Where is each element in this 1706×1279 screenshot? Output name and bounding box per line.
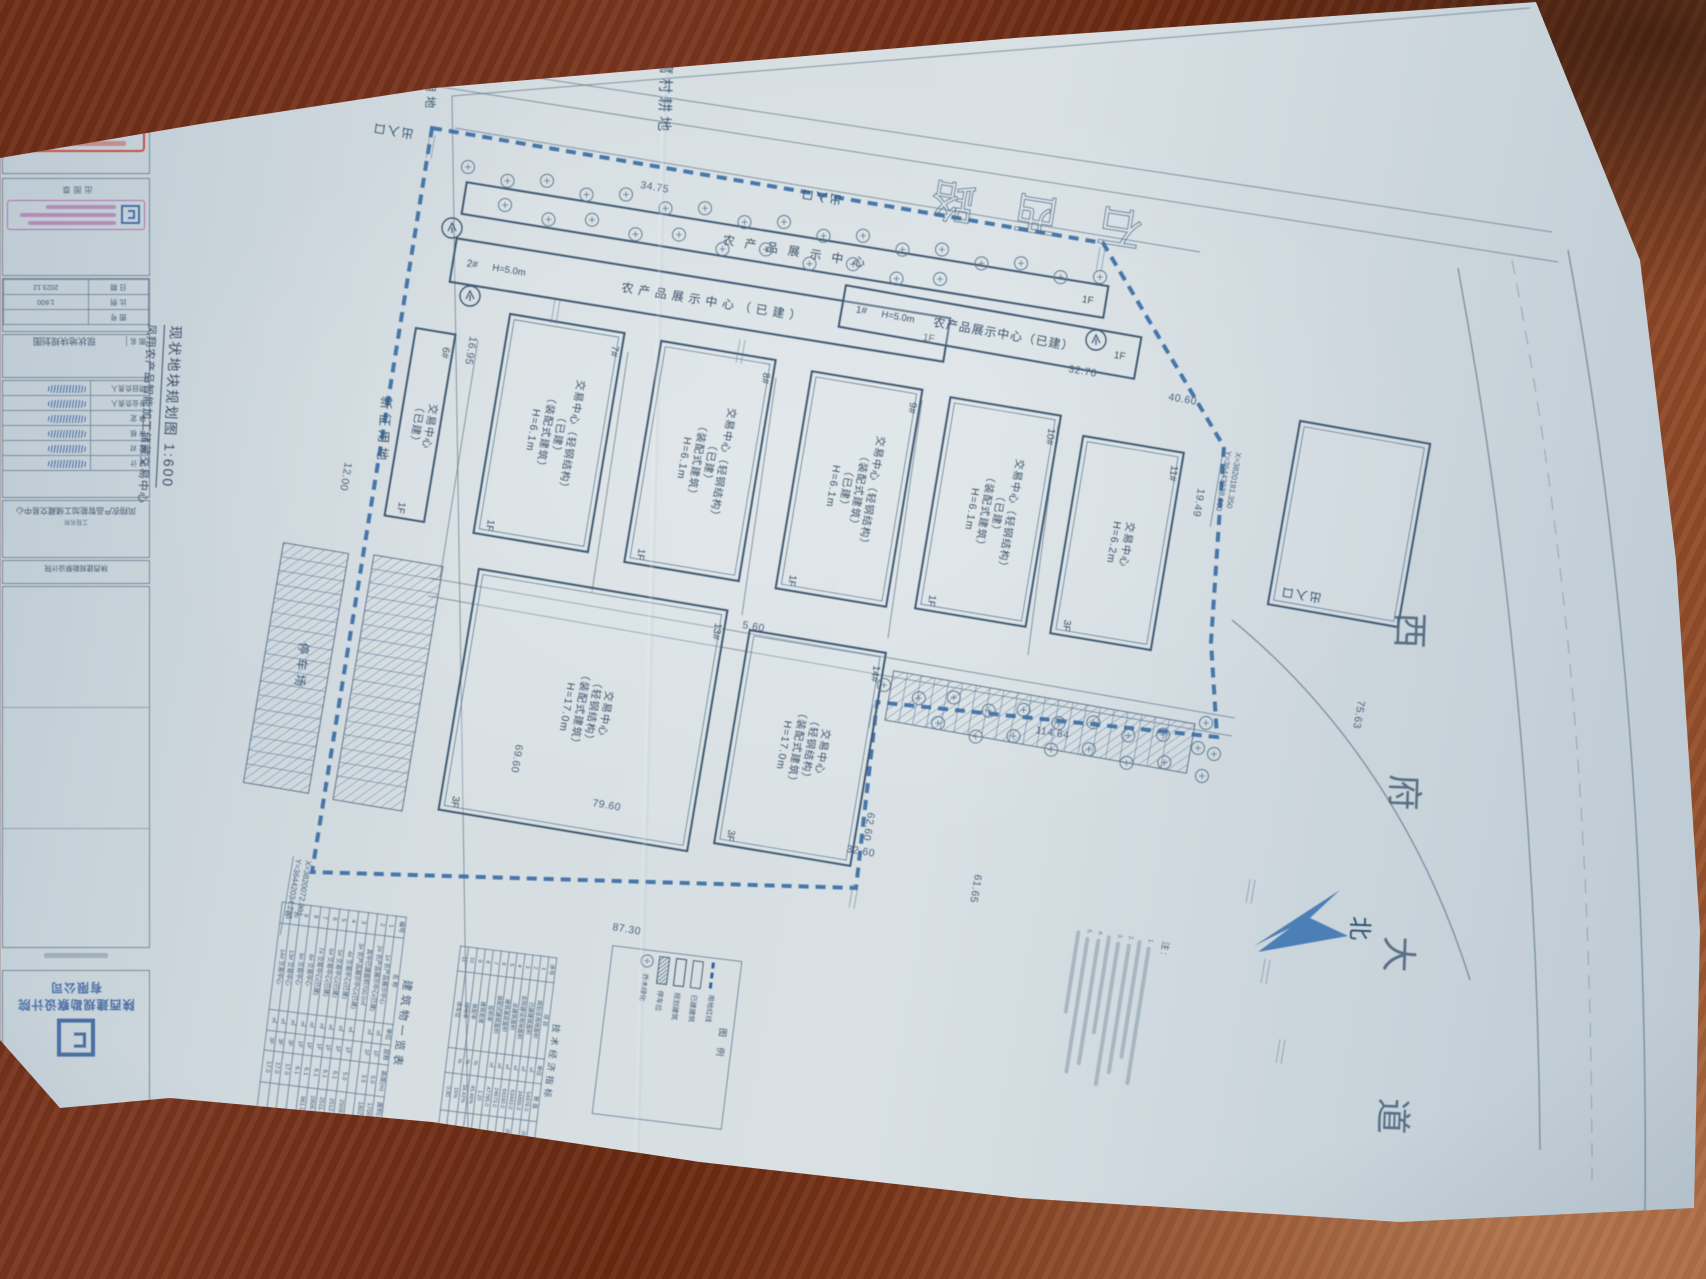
- notes-label: 注:: [1159, 941, 1171, 958]
- road-line: [452, 8, 1530, 96]
- road-line: [0, 48, 340, 100]
- info-cell: 2023.12: [4, 280, 89, 295]
- drawing-name-value: 现状地块规划图: [3, 335, 126, 348]
- info-cell: 日 期: [88, 280, 148, 295]
- tree-icon: [1196, 770, 1209, 783]
- building-floors: 3F: [724, 829, 737, 842]
- building: 交易中心H=6.2m11#3F: [1050, 436, 1184, 650]
- coordinate-tick: [1276, 1039, 1285, 1063]
- building-floors: 1F: [1081, 294, 1094, 307]
- dimension-text: 75.63: [1350, 700, 1367, 730]
- building: 交易中心（轻钢结构）（已建）（装配式建筑）H=6.1m8#1F: [624, 341, 775, 581]
- tree-icon: [699, 202, 712, 215]
- registration-number: 611590-001: [45, 127, 108, 138]
- road-line: [345, 72, 1558, 262]
- registration-stamp: 611590-001 ★ 2025: [7, 94, 145, 152]
- tree-icon: [857, 229, 870, 242]
- tiny-caption: [2, 950, 148, 966]
- signature-scribble: [47, 400, 87, 408]
- signature-row: 审 定: [3, 411, 149, 426]
- issue-stamp: [7, 200, 145, 230]
- building-floors: 1F: [785, 574, 798, 587]
- planned-symbol-icon: [673, 958, 687, 987]
- north-label: 北: [1345, 916, 1373, 941]
- tree-icon: [620, 188, 633, 201]
- tree-icon: [580, 188, 593, 201]
- legend-item-label: 已建建筑: [686, 994, 699, 1023]
- buildings-table: 编号名 称单位层数高度(m)面积(㎡)11# 农产品展示中心㎡1F5.01709…: [256, 902, 407, 1131]
- building-floors: 1F: [634, 548, 647, 561]
- project-name: 凤翔农产品智能加工储藏交易中心: [3, 501, 149, 518]
- building-number: 6#: [438, 346, 451, 359]
- parking-strip: [333, 555, 443, 811]
- company-logo-icon: [121, 206, 140, 225]
- area-label: 豆腐村耕地: [655, 40, 676, 136]
- info-cell: 比 例: [88, 295, 148, 310]
- built-symbol-icon: [690, 960, 704, 989]
- issue-stamp-box: 出图章: [2, 178, 150, 276]
- coordinate-tick: [551, 299, 560, 323]
- area-label: 新征用地: [374, 396, 394, 465]
- building-floors: 1F: [394, 501, 407, 514]
- drawing-name-box: 图 名 现状地块规划图: [2, 334, 150, 378]
- stamp2-label: 出图章: [3, 183, 149, 196]
- title-block-strip: 611590-001 ★ 2025 注册章: [0, 36, 152, 1120]
- road-line: [0, 2, 660, 62]
- building: 交易中心（轻钢结构）（已建）（装配式建筑）H=6.1m7#1F: [473, 314, 624, 552]
- info-grid: 图 号比 例1:600日 期2023.12: [3, 279, 149, 325]
- legend-item-label: 停车位: [653, 990, 665, 1012]
- blueprint-sheet: 农产品展示中心1F农产品展示中心（已建）2#H=5.0m1F农产品展示中心（已建…: [0, 0, 1706, 1279]
- tree-icon: [936, 243, 949, 256]
- boundary-symbol-icon: [709, 962, 715, 988]
- entrance-label: 出入口: [371, 120, 415, 140]
- parking-layer: [243, 543, 1195, 811]
- legend-item-label: 乔木绿化: [637, 973, 650, 1002]
- building-number: 2#: [466, 258, 479, 271]
- building-number: 8#: [759, 372, 772, 385]
- right-road-name: 西 府 大 道: [1370, 612, 1431, 1193]
- company-line2: 有限公司: [50, 981, 102, 995]
- signature-row: 设 计: [3, 456, 149, 471]
- company-name-small: 陕西建规勘察设计院: [3, 561, 149, 575]
- signature-row: 专业负责人: [3, 396, 149, 411]
- tree-icon: [1200, 717, 1213, 730]
- signature-row: 审 核: [3, 426, 149, 441]
- tree-icon: [1208, 748, 1221, 761]
- legend-block: 图 例 用地红线已建建筑规划建筑停车位✛乔木绿化: [592, 945, 743, 1130]
- company-logo-icon-large: [57, 1019, 95, 1057]
- company-row: 陕西建规勘察设计院: [2, 560, 150, 584]
- tree-icon: [659, 202, 672, 215]
- legend-item-label: 规划建筑: [669, 992, 682, 1021]
- dimension-text: 87.30: [612, 921, 642, 938]
- tree-icon: [1015, 257, 1028, 270]
- indicators-table-block: 技术经济指标 序号项 目单位数 值备 注1规划总用地面积㎡54976.0(82.…: [408, 942, 573, 1167]
- area-label: 二期用地: [423, 48, 439, 112]
- road-line: [0, 72, 345, 128]
- project-name-box: 工程名称 凤翔农产品智能加工储藏交易中心: [2, 500, 150, 558]
- dimension-text: 34.75: [640, 179, 670, 196]
- building: 交易中心（轻钢结构）（装配式建筑）H=17.0m13#3F: [439, 569, 728, 851]
- tree-icon: [462, 161, 475, 174]
- registration-stamp-box: 611590-001 ★ 2025 注册章: [2, 72, 150, 174]
- building-floors: 1F: [1113, 350, 1126, 363]
- coordinate-tick: [1096, 247, 1105, 271]
- dimension-text: 16.95: [462, 336, 479, 366]
- company-logo-box: 陕西建规勘察设计院 有限公司: [2, 970, 150, 1114]
- signature-scribble: [47, 460, 87, 468]
- circled-tree-icon: [460, 286, 480, 306]
- legend-item-label: 用地红线: [703, 994, 716, 1023]
- valid-year: 2025: [21, 108, 39, 117]
- signature-scribble: [45, 107, 99, 117]
- tree-symbol-icon: ✛: [640, 954, 654, 968]
- table-cell: [256, 1082, 270, 1116]
- building: 交易中心（轻钢结构）（已建）（装配式建筑）H=6.1m10#1F: [915, 397, 1061, 627]
- tree-icon: [501, 174, 514, 187]
- info-cell: 1:600: [4, 295, 89, 310]
- info-cell: [4, 310, 89, 325]
- dimension-text: 19.49: [1190, 488, 1207, 518]
- coordinate-tick: [1246, 879, 1255, 903]
- dimension-text: 61.65: [967, 874, 984, 904]
- buildings-layer: 农产品展示中心1F农产品展示中心（已建）2#H=5.0m1F农产品展示中心（已建…: [385, 182, 1431, 866]
- tree-icon: [1094, 271, 1107, 284]
- tree-icon: [1192, 742, 1205, 755]
- round-seal-icon: ★: [105, 99, 131, 125]
- signature-row: 校 对: [3, 441, 149, 456]
- signature-scribble: [47, 415, 87, 423]
- road-centerline: [1512, 260, 1592, 1180]
- signature-scribble: [47, 430, 87, 438]
- road-curve: [1458, 268, 1540, 1150]
- top-road-name: 石 西 路: [914, 170, 1145, 254]
- project-label: 工程名称: [3, 518, 149, 527]
- building-number: 9#: [905, 401, 918, 414]
- entrance-label: 出入口: [799, 186, 843, 206]
- circled-tree-icon: [442, 218, 462, 238]
- dimension-text: 12.00: [337, 462, 354, 492]
- building-number: 7#: [607, 345, 620, 358]
- building-floors: 3F: [448, 795, 461, 808]
- blank-box: [2, 586, 150, 948]
- company-line1: 陕西建规勘察设计院: [18, 998, 135, 1012]
- building-floors: 1F: [483, 519, 496, 532]
- info-grid-box: 图 号比 例1:600日 期2023.12: [2, 278, 150, 332]
- dimension-text: 62.60: [860, 812, 877, 842]
- disclaimer-row: [2, 44, 150, 70]
- tree-icon: [541, 174, 554, 187]
- info-cell: 图 号: [88, 310, 148, 325]
- building: 交易中心（轻钢结构）（装配式建筑）H=17.0m14#3F: [714, 630, 886, 866]
- notes-block: 注: 1. 2. 3. 4. 5.: [987, 917, 1176, 1106]
- road-curve: [1568, 250, 1645, 1215]
- building-floors: 1F: [925, 594, 938, 607]
- signature-scribble: [47, 445, 87, 453]
- coordinate-tick: [1261, 959, 1270, 983]
- desk-photo: 农产品展示中心1F农产品展示中心（已建）2#H=5.0m1F农产品展示中心（已建…: [0, 0, 1706, 1279]
- table-cell: [436, 1110, 449, 1154]
- tree-icon: [778, 216, 791, 229]
- signature-row: 项目负责人: [3, 381, 149, 396]
- buildings-table-block: 建筑物一览表 编号名 称单位层数高度(m)面积(㎡)11# 农产品展示中心㎡1F…: [174, 892, 425, 1133]
- coordinate-callout: X=3820181.350Y=36443978.600: [1210, 448, 1243, 530]
- north-arrow-icon: [1254, 890, 1348, 952]
- building: 交易中心（已建）6#1F: [385, 328, 456, 522]
- signature-box: 设 计校 对审 核审 定专业负责人项目负责人: [2, 380, 150, 498]
- stamp1-label: 注册章: [3, 77, 149, 90]
- signature-scribble: [47, 385, 87, 393]
- building: 交易中心（轻钢结构）（装配式建筑）（已建）H=6.1m9#1F: [776, 371, 923, 606]
- parking-symbol-icon: [656, 956, 670, 985]
- building-floors: 3F: [1060, 619, 1073, 632]
